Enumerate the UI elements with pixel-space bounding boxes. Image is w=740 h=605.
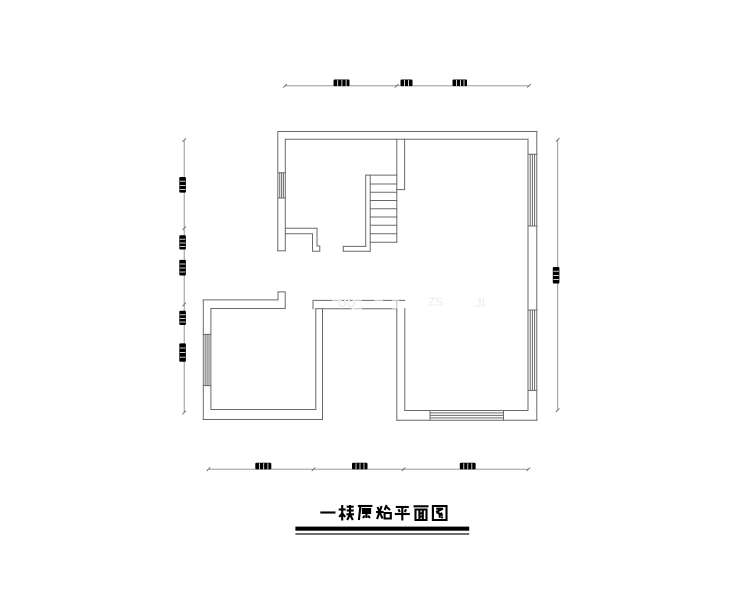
svg-text:JI: JI bbox=[475, 296, 485, 310]
svg-text:ZS: ZS bbox=[428, 295, 443, 309]
svg-text:UQ: UQ bbox=[338, 296, 356, 310]
